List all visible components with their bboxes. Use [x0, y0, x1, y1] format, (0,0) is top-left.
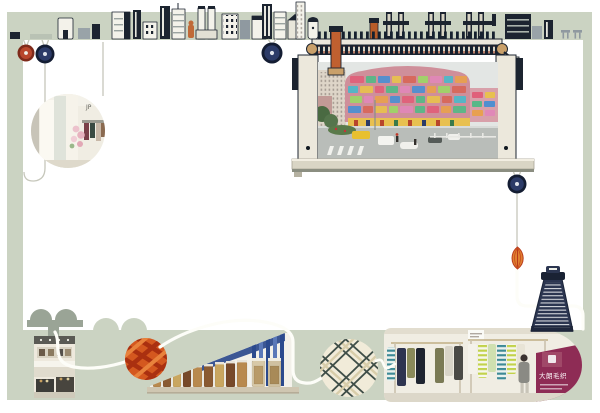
band-arch-bump [93, 318, 119, 344]
red-button [18, 45, 35, 62]
shopper-person [520, 354, 527, 361]
photo-clothing-racks: 大朗毛织 [384, 328, 582, 402]
flat-knitting-machine [292, 12, 534, 177]
boutique-sign-text: JP [85, 104, 92, 111]
navy-button [262, 43, 283, 64]
navy-button [36, 45, 55, 64]
collage-page: JP [0, 0, 600, 413]
collage-art: JP [0, 0, 600, 413]
market-banner-text: 大朗毛织 [539, 371, 567, 380]
navy-button [508, 175, 527, 194]
photo-market-street [314, 62, 498, 159]
